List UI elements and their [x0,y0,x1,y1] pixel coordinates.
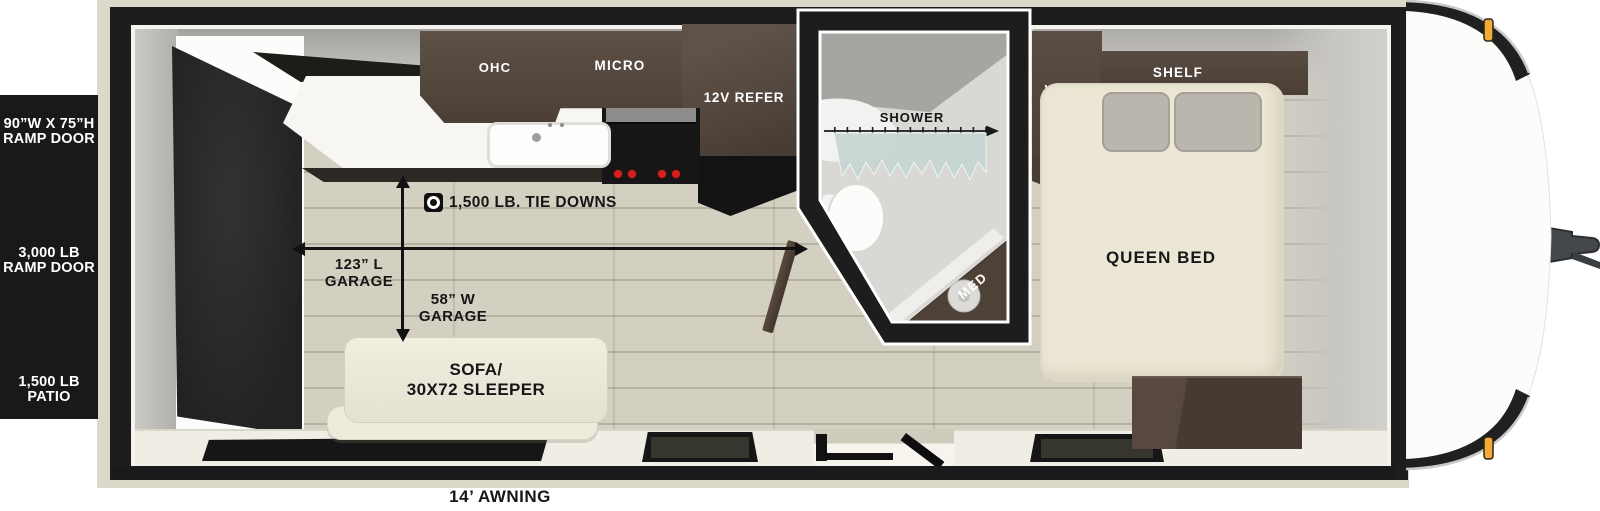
faucet-icon [532,133,541,142]
awning-label: 14’ AWNING [400,487,600,507]
sofa-label-line1: SOFA/ [449,360,502,380]
marker-light-icon [1484,437,1493,459]
refer-label: 12V REFER [684,90,804,105]
patio-ramp-door-panel: 90”W X 75”H RAMP DOOR 3,000 LB RAMP DOOR… [0,95,98,419]
rear-interior-wall [135,29,179,430]
garage-length-arrow [303,247,797,250]
stove-knob [628,170,636,178]
window-glass [651,437,748,458]
shower-label: SHOWER [880,110,945,125]
sofa-label-line2: 30X72 SLEEPER [407,380,545,400]
garage-length-label: 123” L GARAGE [320,256,398,290]
entry-door-sill [823,453,893,460]
bed-pillow [1102,92,1170,152]
kitchen-sink [487,122,611,168]
faucet-handle [560,123,564,127]
entry-side-window [642,432,758,462]
queen-bed-label: QUEEN BED [1086,248,1236,268]
marker-light-icon [1484,19,1493,41]
trailer-nose [1406,0,1600,511]
foot-of-bed-cabinet [1132,376,1302,449]
garage-window [202,437,548,461]
open-ramp-door-panel [172,46,302,436]
ramp-door-size-label: 90”W X 75”H RAMP DOOR [0,117,98,147]
tie-downs-label: 1,500 LB. TIE DOWNS [449,194,617,212]
micro-label: MICRO [565,58,675,73]
floorplan-canvas: OHC MICRO 12V REFER SHOWER MED W [0,0,1600,511]
garage-width-label: 58” W GARAGE [408,291,498,325]
bed-pillow [1174,92,1262,152]
garage-width-arrow [401,186,404,331]
range-stove [602,108,700,184]
hitch-hook [1572,252,1600,269]
kitchen-counter-underside [302,168,612,182]
faucet-handle [548,123,552,127]
stove-knob [658,170,666,178]
shelf-label: SHELF [1102,65,1254,80]
stove-knob [614,170,622,178]
entry-door-opening [814,429,954,465]
awning-bar [112,466,1396,479]
tie-down-anchor-icon [424,193,443,212]
entry-door-leaf [901,433,945,469]
ohc-label: OHC [440,60,550,75]
sofa-backrest: SOFA/ 30X72 SLEEPER [344,337,608,423]
stove-knob [672,170,680,178]
stove-top-panel [606,108,696,124]
patio-weight-label: 1,500 LB PATIO [0,375,98,405]
ramp-door-weight-label: 3,000 LB RAMP DOOR [0,246,98,276]
bathroom: SHOWER MED [790,0,1040,360]
